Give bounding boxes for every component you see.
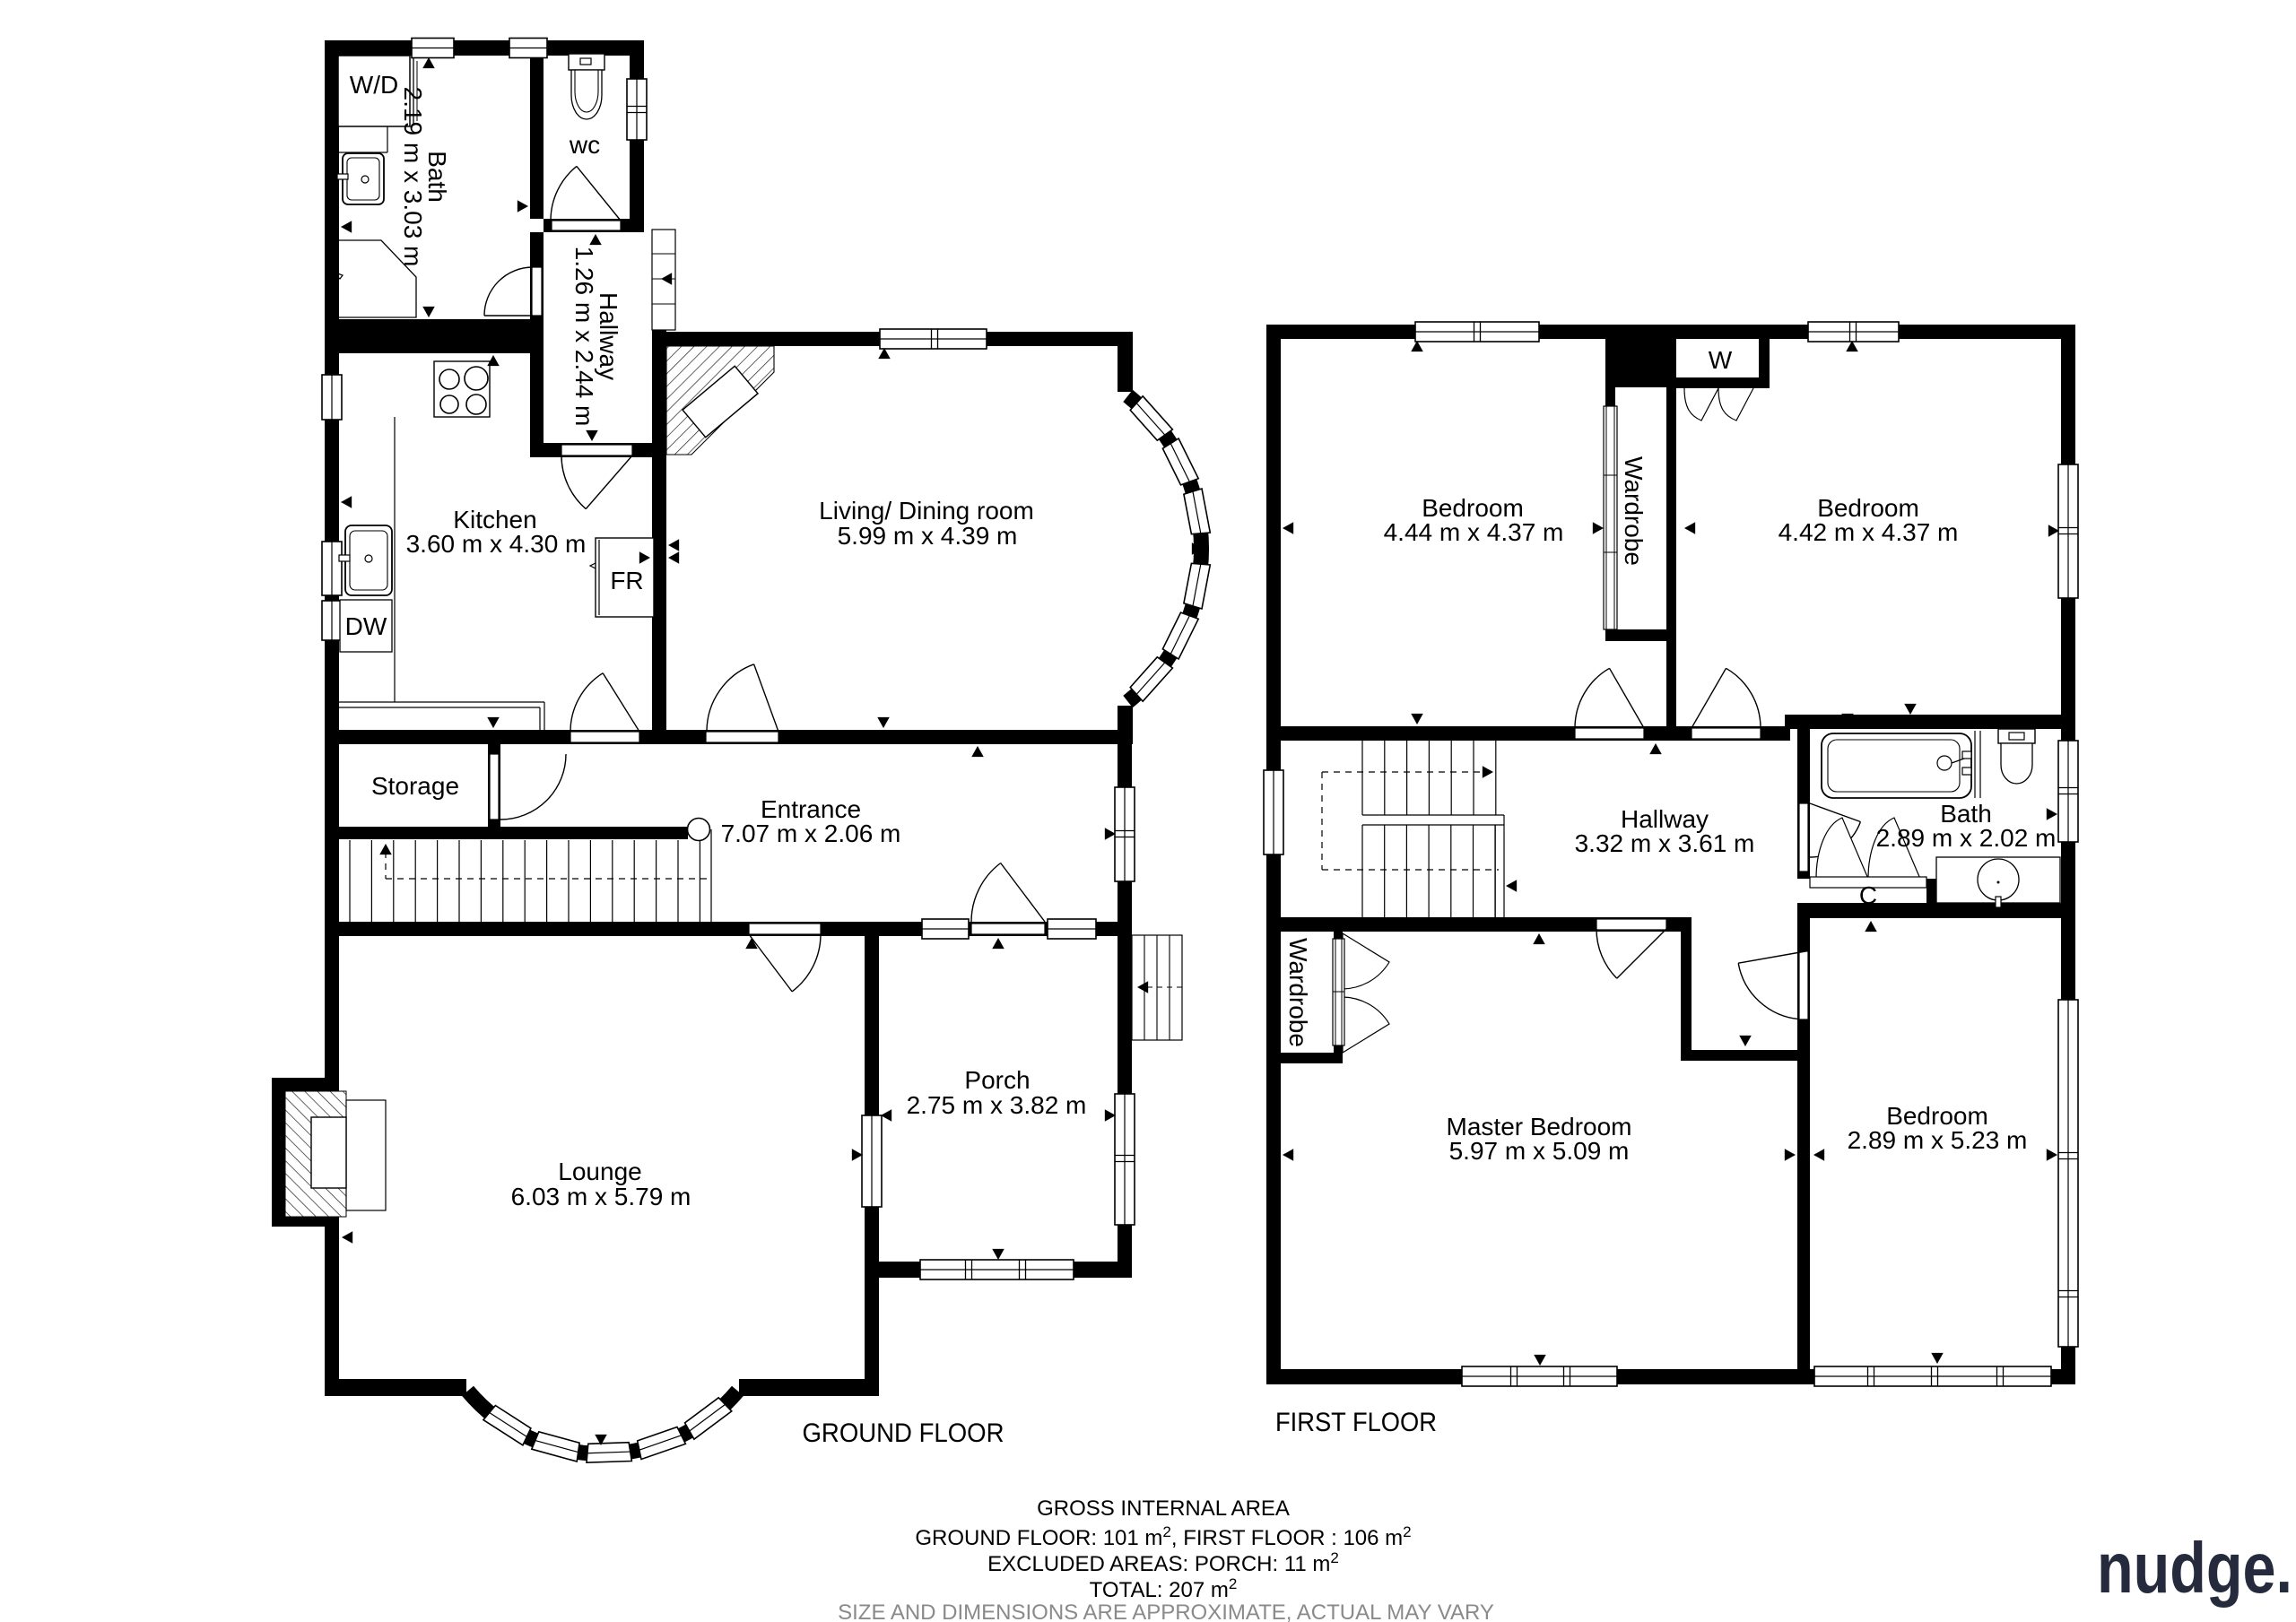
svg-text:3.60 m x 4.30 m: 3.60 m x 4.30 m bbox=[406, 530, 587, 558]
svg-text:Lounge: Lounge bbox=[558, 1158, 641, 1185]
svg-text:Porch: Porch bbox=[964, 1066, 1030, 1094]
svg-text:GROUND FLOOR: GROUND FLOOR bbox=[803, 1418, 1004, 1448]
svg-text:wc: wc bbox=[569, 131, 600, 159]
svg-text:6.03 m x 5.79 m: 6.03 m x 5.79 m bbox=[511, 1183, 691, 1210]
svg-text:1.26 m x 2.44 m: 1.26 m x 2.44 m bbox=[570, 247, 598, 427]
svg-text:EXCLUDED AREAS: PORCH: 11 m2: EXCLUDED AREAS: PORCH: 11 m2 bbox=[987, 1549, 1339, 1576]
svg-text:Storage: Storage bbox=[371, 772, 459, 800]
svg-text:C: C bbox=[1859, 881, 1877, 909]
svg-text:FIRST FLOOR: FIRST FLOOR bbox=[1275, 1408, 1437, 1437]
svg-text:DW: DW bbox=[345, 612, 387, 640]
svg-text:2.89 m x 2.02 m: 2.89 m x 2.02 m bbox=[1876, 824, 2057, 852]
svg-text:3.32 m x 3.61 m: 3.32 m x 3.61 m bbox=[1575, 829, 1755, 857]
svg-text:2.75 m x 3.82 m: 2.75 m x 3.82 m bbox=[907, 1091, 1087, 1119]
svg-text:SIZE AND DIMENSIONS ARE APPROX: SIZE AND DIMENSIONS ARE APPROXIMATE, ACT… bbox=[838, 1600, 1494, 1622]
svg-text:2.89 m x 5.23 m: 2.89 m x 5.23 m bbox=[1848, 1126, 2028, 1154]
svg-text:nudge.: nudge. bbox=[2097, 1528, 2292, 1608]
svg-text:4.44 m x 4.37 m: 4.44 m x 4.37 m bbox=[1384, 518, 1564, 546]
svg-text:W: W bbox=[1709, 346, 1733, 374]
svg-text:FR: FR bbox=[610, 567, 643, 594]
svg-text:2.19 m x 3.03 m: 2.19 m x 3.03 m bbox=[399, 87, 427, 267]
svg-text:Wardrobe: Wardrobe bbox=[1284, 938, 1312, 1047]
svg-text:GROSS INTERNAL AREA: GROSS INTERNAL AREA bbox=[1037, 1496, 1290, 1521]
svg-text:5.97 m x 5.09 m: 5.97 m x 5.09 m bbox=[1449, 1137, 1630, 1165]
svg-text:TOTAL: 207 m2: TOTAL: 207 m2 bbox=[1090, 1575, 1238, 1602]
svg-text:Living/ Dining room: Living/ Dining room bbox=[819, 497, 1034, 525]
svg-text:Wardrobe: Wardrobe bbox=[1620, 456, 1648, 566]
svg-text:W/D: W/D bbox=[350, 71, 398, 99]
svg-text:7.07 m x 2.06 m: 7.07 m x 2.06 m bbox=[721, 820, 901, 847]
svg-text:5.99 m x 4.39 m: 5.99 m x 4.39 m bbox=[838, 522, 1018, 550]
svg-text:4.42 m x 4.37 m: 4.42 m x 4.37 m bbox=[1779, 518, 1959, 546]
